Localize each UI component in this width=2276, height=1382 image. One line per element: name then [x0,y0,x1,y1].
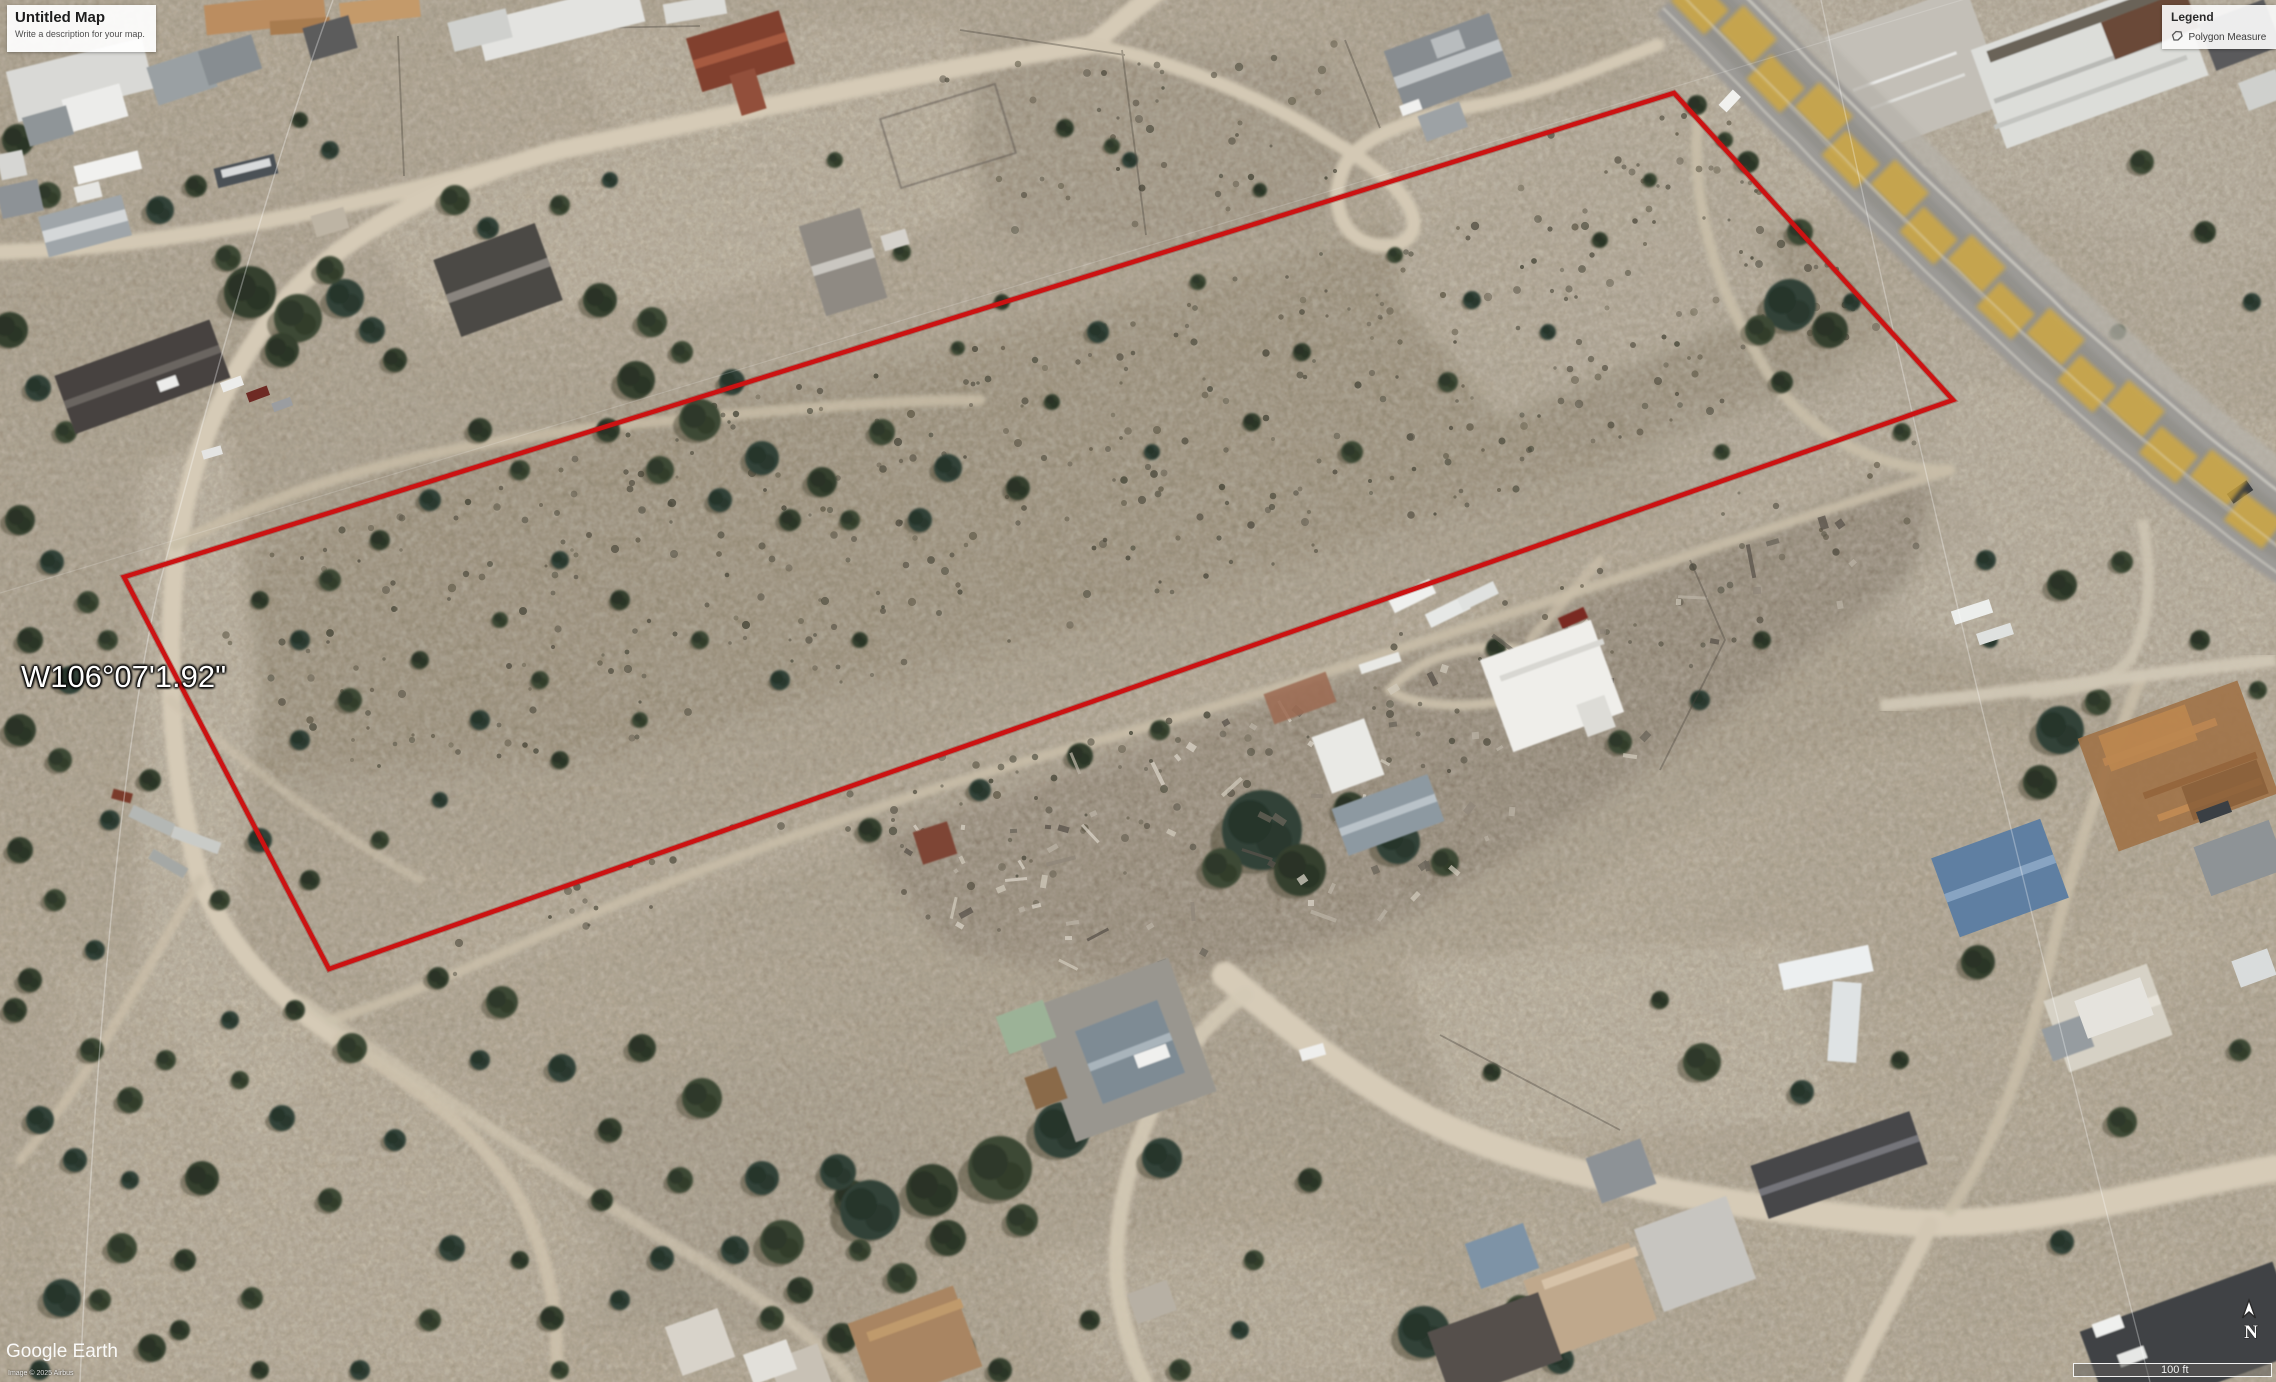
svg-text:N: N [2244,1322,2258,1343]
